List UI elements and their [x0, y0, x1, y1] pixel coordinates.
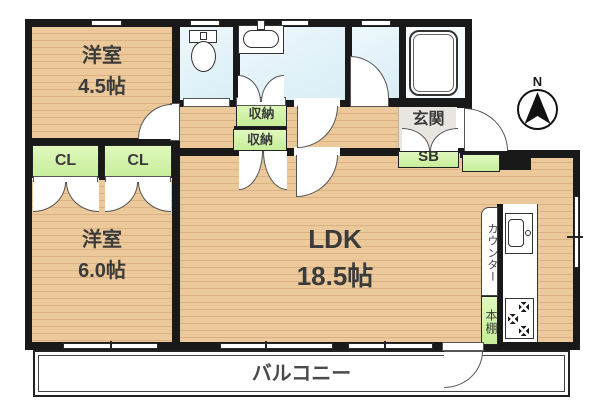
shoebox-label: SB — [398, 148, 459, 167]
wall-bedroom1-bottom — [25, 138, 180, 145]
storage-upper-label: 収納 — [236, 106, 287, 122]
front-door-arc — [464, 108, 508, 151]
compass-arrow-icon — [517, 89, 558, 130]
kitchen-faucet-icon — [525, 230, 531, 236]
bookshelf-label: 本棚 — [482, 300, 498, 343]
bedroom1-name: 洋室 — [32, 44, 172, 69]
vanity-faucet-icon — [257, 20, 265, 30]
window-tick-1 — [110, 341, 112, 351]
toilet-door-panel — [183, 98, 230, 107]
balcony-door-panel — [442, 342, 484, 351]
wall-block-east — [500, 151, 531, 170]
closet-right-label: CL — [104, 151, 172, 171]
vanity-basin-icon — [243, 30, 279, 48]
window-top-4 — [361, 20, 391, 26]
ldk-label: LDK 18.5帖 — [250, 223, 420, 292]
balcony-label: バルコニー — [33, 362, 570, 387]
window-tick-3 — [384, 341, 386, 351]
toilet-bowl-icon — [191, 41, 216, 72]
kitchen-sink-basin-icon — [508, 219, 524, 247]
window-tick-2 — [265, 341, 267, 351]
bedroom1-size: 4.5帖 — [32, 75, 172, 100]
toilet-button-icon — [200, 32, 207, 40]
window-tick-4 — [567, 236, 583, 238]
wall-hall-bottom-a — [172, 148, 240, 156]
window-bottom-3 — [348, 343, 433, 349]
window-right — [574, 196, 579, 268]
stove-burner-icon — [508, 314, 518, 324]
window-top-2 — [190, 20, 220, 26]
compass-north-label: N — [527, 74, 548, 90]
storage-east-box — [462, 154, 500, 172]
bedroom2-size: 6.0帖 — [32, 259, 172, 284]
bedroom2-name: 洋室 — [32, 228, 172, 253]
ldk-size: 18.5帖 — [250, 260, 420, 293]
wall-left — [25, 19, 32, 350]
entrance-label: 玄関 — [398, 110, 459, 130]
ldk-name: LDK — [250, 223, 420, 256]
wall-hall-bottom-c — [340, 148, 400, 156]
window-top-1 — [91, 20, 122, 26]
changing-door-panel — [350, 97, 389, 107]
floorplan: N 洋室 4.5帖 洋室 6.0帖 LDK 18.5帖 バルコニー 玄関 SB … — [0, 0, 600, 420]
window-top-3 — [281, 20, 309, 26]
counter-label: カウンター — [482, 210, 498, 295]
storage-lower-label: 収納 — [233, 132, 287, 148]
window-bottom-2 — [220, 343, 333, 349]
wall-changing-bath — [399, 19, 406, 107]
closet-left-label: CL — [32, 151, 99, 171]
bathtub-inner-icon — [413, 34, 454, 92]
stove-burner-icon — [519, 302, 529, 312]
wall-bedrooms-right-b — [172, 140, 180, 342]
hallway-floor — [180, 107, 400, 148]
wall-bedrooms-right-a — [172, 19, 180, 104]
wall-bath-bottom — [399, 98, 466, 107]
bedroom1-label: 洋室 4.5帖 — [32, 44, 172, 100]
bedroom2-label: 洋室 6.0帖 — [32, 228, 172, 284]
stove-burner-icon — [519, 326, 529, 336]
